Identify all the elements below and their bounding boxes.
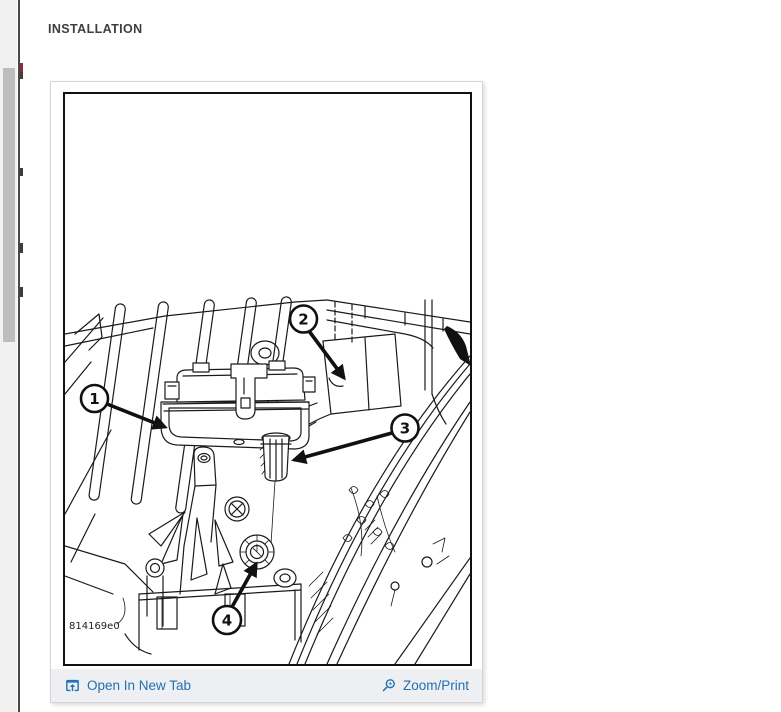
clipped-content-fragment	[20, 72, 23, 79]
part-number-label: 814169e0	[69, 621, 120, 632]
svg-text:4: 4	[222, 612, 232, 630]
figure-toolbar: Open In New Tab Zoom/Print	[51, 669, 482, 702]
callout-3: 3	[294, 415, 419, 461]
svg-text:2: 2	[298, 311, 308, 329]
scrollbar-track[interactable]	[0, 0, 17, 712]
figure-card: 814169e0 1 2 3	[50, 81, 483, 703]
clipped-content-fragment	[20, 63, 23, 72]
clipped-content-fragment	[20, 168, 23, 176]
callout-2: 2	[290, 306, 344, 379]
diagram-line-art	[65, 296, 470, 664]
callout-1: 1	[81, 385, 165, 427]
zoom-print-link[interactable]: Zoom/Print	[380, 677, 469, 694]
clipped-content-fragment	[20, 243, 23, 253]
panel-divider	[18, 0, 20, 712]
svg-text:3: 3	[400, 420, 410, 438]
page-title: INSTALLATION	[48, 22, 143, 36]
installation-diagram: 814169e0 1 2 3	[65, 94, 470, 664]
zoom-print-label: Zoom/Print	[403, 678, 469, 693]
callout-4: 4	[213, 564, 256, 634]
scrollbar-thumb[interactable]	[3, 68, 15, 342]
diagram-callouts: 1 2 3 4	[81, 306, 419, 635]
svg-text:1: 1	[89, 390, 99, 408]
open-in-new-tab-link[interactable]: Open In New Tab	[64, 677, 191, 694]
open-in-browser-icon	[64, 677, 81, 694]
open-in-new-tab-label: Open In New Tab	[87, 678, 191, 693]
figure-frame: 814169e0 1 2 3	[63, 92, 472, 666]
zoom-in-icon	[380, 677, 397, 694]
clipped-content-fragment	[20, 287, 23, 297]
